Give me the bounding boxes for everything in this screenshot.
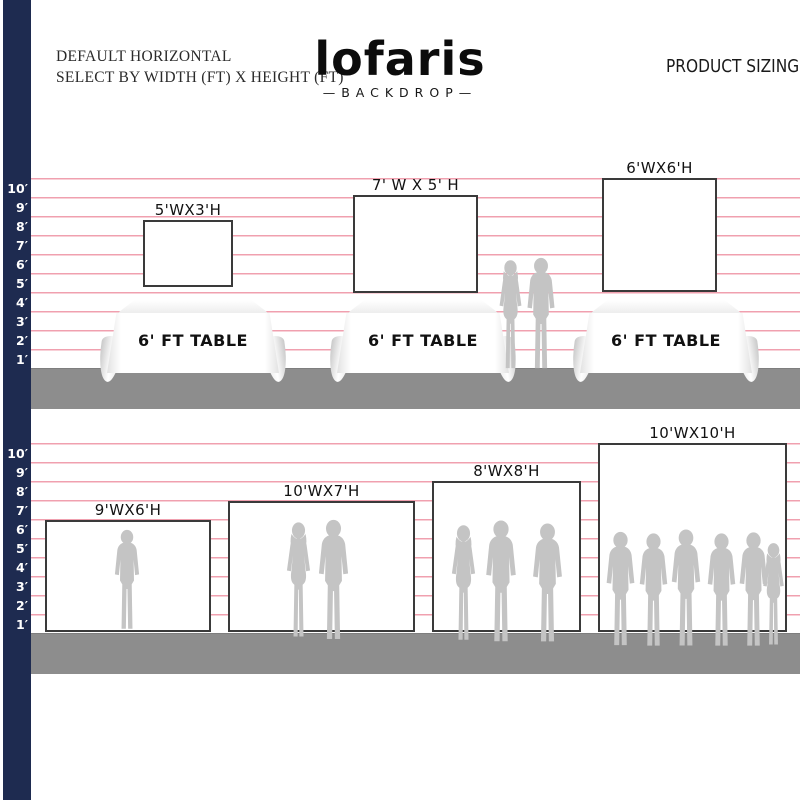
subtitle-line2: SELECT BY WIDTH (FT) X HEIGHT (FT) bbox=[56, 67, 344, 88]
ruler-mark-bottom-10ft: 10′ bbox=[3, 445, 31, 462]
brand-name: lofaris bbox=[314, 36, 485, 82]
page-title: PRODUCT SIZING bbox=[666, 57, 799, 77]
table-top-surface bbox=[580, 300, 752, 314]
ruler-mark-top-9ft: 9′ bbox=[3, 199, 31, 216]
brand-subtitle: —BACKDROP— bbox=[314, 85, 485, 100]
ruler-mark-top-5ft: 5′ bbox=[3, 275, 31, 292]
table-front: 6' FT TABLE bbox=[107, 313, 279, 373]
man-silhouette bbox=[527, 523, 568, 647]
ruler-mark-bottom-6ft: 6′ bbox=[3, 521, 31, 538]
backdrop-9x6-label: 9'WX6'H bbox=[95, 501, 162, 519]
table-1: 6' FT TABLE bbox=[107, 300, 279, 382]
backdrop-5x3-label: 5'WX3'H bbox=[155, 201, 222, 219]
ruler-mark-top-10ft: 10′ bbox=[3, 180, 31, 197]
backdrop-6x6-label: 6'WX6'H bbox=[626, 159, 693, 177]
backdrop-7x5-label: 7' W X 5' H bbox=[372, 176, 459, 194]
ruler-mark-top-2ft: 2′ bbox=[3, 332, 31, 349]
man-silhouette bbox=[313, 519, 354, 645]
woman-silhouette bbox=[758, 540, 789, 652]
ruler-mark-bottom-2ft: 2′ bbox=[3, 597, 31, 614]
backdrop-5x3: 5'WX3'H bbox=[143, 220, 233, 287]
table-2-label: 6' FT TABLE bbox=[368, 331, 478, 350]
backdrop-6x6: 6'WX6'H bbox=[602, 178, 717, 292]
table-3-label: 6' FT TABLE bbox=[611, 331, 721, 350]
ruler-mark-top-7ft: 7′ bbox=[3, 237, 31, 254]
ruler-mark-top-4ft: 4′ bbox=[3, 294, 31, 311]
woman-silhouette bbox=[281, 522, 316, 642]
table-1-label: 6' FT TABLE bbox=[138, 331, 248, 350]
table-2: 6' FT TABLE bbox=[337, 300, 509, 382]
ruler-mark-bottom-9ft: 9′ bbox=[3, 464, 31, 481]
table-front: 6' FT TABLE bbox=[580, 313, 752, 373]
man-silhouette bbox=[110, 529, 144, 634]
ruler-mark-bottom-3ft: 3′ bbox=[3, 578, 31, 595]
backdrop-7x5: 7' W X 5' H bbox=[353, 195, 478, 293]
brand-logo: lofaris —BACKDROP— bbox=[314, 36, 485, 100]
backdrop-10x10-label: 10'WX10'H bbox=[649, 424, 735, 442]
product-sizing-page: DEFAULT HORIZONTAL SELECT BY WIDTH (FT) … bbox=[0, 0, 800, 800]
man-silhouette bbox=[522, 257, 560, 374]
ruler-mark-top-8ft: 8′ bbox=[3, 218, 31, 235]
ruler-mark-bottom-1ft: 1′ bbox=[3, 616, 31, 633]
page-subtitle: DEFAULT HORIZONTAL SELECT BY WIDTH (FT) … bbox=[56, 46, 344, 88]
ruler-mark-bottom-5ft: 5′ bbox=[3, 540, 31, 557]
table-top-surface bbox=[107, 300, 279, 314]
ruler-bar bbox=[3, 0, 31, 800]
backdrop-8x8-label: 8'WX8'H bbox=[473, 462, 540, 480]
table-3: 6' FT TABLE bbox=[580, 300, 752, 382]
ruler-mark-top-6ft: 6′ bbox=[3, 256, 31, 273]
man-silhouette bbox=[480, 520, 522, 647]
subtitle-line1: DEFAULT HORIZONTAL bbox=[56, 46, 344, 67]
ruler-mark-bottom-4ft: 4′ bbox=[3, 559, 31, 576]
ruler-mark-top-3ft: 3′ bbox=[3, 313, 31, 330]
table-front: 6' FT TABLE bbox=[337, 313, 509, 373]
ruler-mark-top-1ft: 1′ bbox=[3, 351, 31, 368]
woman-silhouette bbox=[446, 524, 481, 646]
ruler-mark-bottom-8ft: 8′ bbox=[3, 483, 31, 500]
man-silhouette bbox=[666, 529, 706, 651]
backdrop-10x7-label: 10'WX7'H bbox=[283, 482, 359, 500]
ruler-mark-bottom-7ft: 7′ bbox=[3, 502, 31, 519]
table-top-surface bbox=[337, 300, 509, 314]
